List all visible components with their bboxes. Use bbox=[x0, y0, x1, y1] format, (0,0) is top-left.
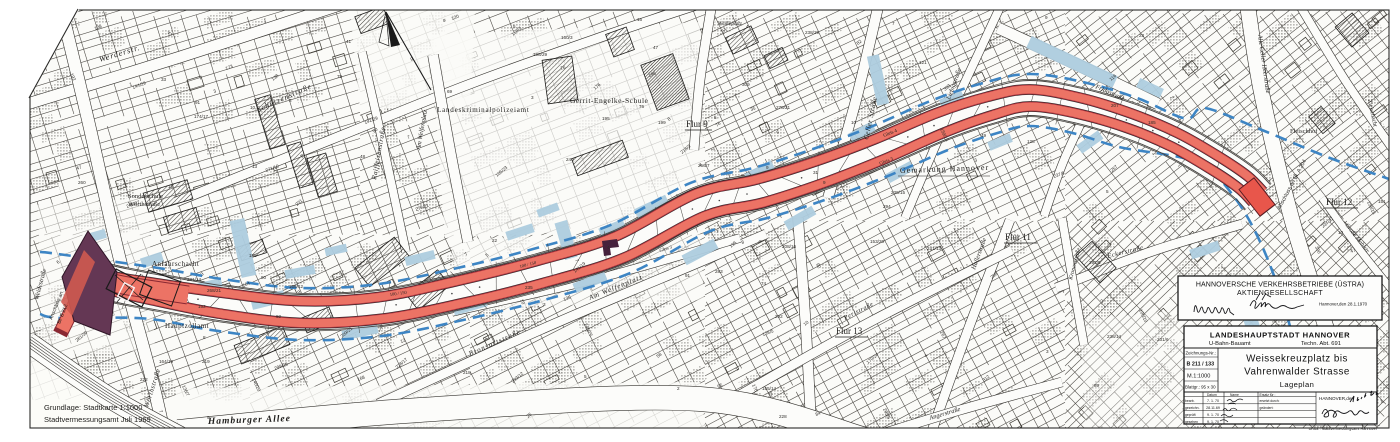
svg-text:Name: Name bbox=[1230, 393, 1239, 397]
svg-text:geprüft: geprüft bbox=[1185, 413, 1196, 417]
svg-text:Druck : Stadtvermessungsamt Ha: Druck : Stadtvermessungsamt Hannover bbox=[1309, 427, 1378, 431]
svg-text:241/13: 241/13 bbox=[927, 246, 941, 251]
svg-text:268/21: 268/21 bbox=[207, 288, 221, 293]
svg-text:7: 7 bbox=[892, 21, 895, 26]
svg-text:HANNOVERSCHE VERKEHRSBETRIEBE: HANNOVERSCHE VERKEHRSBETRIEBE (ÜSTRA) bbox=[1196, 281, 1364, 289]
svg-text:278/21: 278/21 bbox=[776, 105, 790, 110]
svg-text:28.11.69: 28.11.69 bbox=[1206, 406, 1220, 410]
svg-text:128: 128 bbox=[1027, 139, 1035, 144]
svg-text:92: 92 bbox=[276, 314, 282, 319]
svg-text:5: 5 bbox=[714, 115, 717, 120]
svg-text:240: 240 bbox=[566, 157, 574, 162]
svg-text:260: 260 bbox=[78, 180, 86, 185]
svg-text:207: 207 bbox=[1111, 103, 1119, 108]
svg-text:8: 8 bbox=[203, 335, 206, 340]
svg-text:9: 9 bbox=[443, 18, 446, 23]
svg-text:5: 5 bbox=[584, 374, 587, 379]
svg-text:Sonderschule: Sonderschule bbox=[128, 193, 163, 200]
svg-text:Anfahrschacht: Anfahrschacht bbox=[152, 260, 199, 268]
svg-text:bearb.: bearb. bbox=[1185, 399, 1195, 403]
svg-text:M.1:1000: M.1:1000 bbox=[1187, 374, 1210, 380]
svg-text:76: 76 bbox=[639, 104, 645, 109]
svg-text:10: 10 bbox=[1338, 230, 1344, 235]
svg-text:3: 3 bbox=[531, 95, 534, 100]
svg-text:256/7: 256/7 bbox=[698, 163, 710, 168]
svg-text:3: 3 bbox=[1046, 349, 1049, 354]
svg-text:15: 15 bbox=[168, 184, 174, 189]
svg-text:5: 5 bbox=[513, 24, 516, 29]
svg-text:HANNOVER,den: HANNOVER,den bbox=[1319, 396, 1354, 401]
svg-text:208/16: 208/16 bbox=[782, 244, 796, 249]
svg-text:74: 74 bbox=[761, 281, 767, 286]
svg-text:Gerrit-Engelke-Schule: Gerrit-Engelke-Schule bbox=[570, 96, 649, 105]
svg-text:297/5: 297/5 bbox=[1089, 260, 1101, 265]
svg-text:186: 186 bbox=[249, 253, 257, 258]
svg-text:ersetzt durch:: ersetzt durch: bbox=[1260, 399, 1280, 403]
svg-text:3: 3 bbox=[543, 302, 546, 307]
svg-text:Zeichnungs-Nr.:: Zeichnungs-Nr.: bbox=[1186, 351, 1216, 356]
svg-text:292: 292 bbox=[775, 314, 783, 319]
svg-text:Techn. Abt. 691: Techn. Abt. 691 bbox=[1301, 341, 1341, 347]
svg-text:309: 309 bbox=[742, 82, 750, 87]
svg-text:281/14: 281/14 bbox=[187, 277, 201, 282]
svg-text:199: 199 bbox=[658, 120, 666, 125]
svg-text:69: 69 bbox=[447, 89, 453, 94]
svg-text:Vahrenwalder Strasse: Vahrenwalder Strasse bbox=[1244, 367, 1350, 378]
svg-text:9: 9 bbox=[766, 165, 769, 170]
svg-text:91: 91 bbox=[685, 273, 691, 278]
svg-text:LANDESHAUPTSTADT HANNOVER: LANDESHAUPTSTADT HANNOVER bbox=[1210, 331, 1350, 340]
svg-text:AKTIENGESELLSCHAFT: AKTIENGESELLSCHAFT bbox=[1237, 290, 1323, 297]
svg-text:198/29: 198/29 bbox=[533, 52, 547, 57]
svg-text:49: 49 bbox=[981, 133, 987, 138]
svg-text:Flur 12: Flur 12 bbox=[1326, 197, 1352, 207]
svg-text:239/15: 239/15 bbox=[891, 190, 905, 195]
svg-text:23: 23 bbox=[1139, 33, 1145, 38]
svg-text:gezeichn.: gezeichn. bbox=[1185, 406, 1200, 410]
svg-text:Grundlage: Stadtkarte 1:1000: Grundlage: Stadtkarte 1:1000 bbox=[44, 403, 142, 412]
svg-text:9: 9 bbox=[823, 180, 826, 185]
svg-text:Weissekreuzplatz bis: Weissekreuzplatz bis bbox=[1246, 354, 1348, 365]
svg-text:195: 195 bbox=[602, 116, 610, 121]
svg-text:31: 31 bbox=[813, 170, 819, 175]
svg-text:235: 235 bbox=[525, 285, 533, 290]
svg-text:152: 152 bbox=[198, 304, 206, 309]
svg-text:5: 5 bbox=[1106, 189, 1109, 194]
svg-text:79: 79 bbox=[337, 74, 343, 79]
svg-text:7: 7 bbox=[716, 229, 719, 234]
svg-text:Lageplan: Lageplan bbox=[1280, 380, 1314, 389]
svg-text:9: 9 bbox=[207, 415, 210, 420]
svg-text:160/3: 160/3 bbox=[561, 35, 573, 40]
svg-text:294: 294 bbox=[883, 204, 891, 209]
svg-text:121: 121 bbox=[919, 60, 927, 65]
svg-text:33: 33 bbox=[161, 77, 167, 82]
svg-text:Stadtvermessungsamt Juli 1969: Stadtvermessungsamt Juli 1969 bbox=[44, 415, 151, 424]
svg-text:151: 151 bbox=[1378, 199, 1386, 204]
svg-text:gesehen: gesehen bbox=[1185, 420, 1198, 424]
svg-text:222: 222 bbox=[140, 377, 148, 382]
svg-text:231/6: 231/6 bbox=[1157, 337, 1169, 342]
svg-text:48: 48 bbox=[360, 154, 366, 159]
svg-text:B 211 / 133: B 211 / 133 bbox=[1187, 362, 1215, 368]
svg-text:Flur 13: Flur 13 bbox=[836, 326, 863, 336]
svg-text:geändert:: geändert: bbox=[1260, 406, 1274, 410]
svg-text:153/20: 153/20 bbox=[870, 239, 884, 244]
svg-text:9. 1. 70: 9. 1. 70 bbox=[1207, 413, 1219, 417]
svg-text:219: 219 bbox=[202, 359, 210, 364]
svg-text:89: 89 bbox=[1094, 383, 1100, 388]
svg-text:218: 218 bbox=[463, 370, 471, 375]
svg-text:U-Bahn-Bauamt: U-Bahn-Bauamt bbox=[1209, 341, 1251, 347]
svg-text:174/17: 174/17 bbox=[194, 114, 208, 119]
svg-text:Blattgr.: 95 x 30: Blattgr.: 95 x 30 bbox=[1185, 385, 1216, 390]
svg-text:91: 91 bbox=[195, 100, 201, 105]
svg-text:Flur 9: Flur 9 bbox=[686, 119, 708, 129]
svg-text:13: 13 bbox=[252, 164, 258, 169]
svg-text:Hannover,den 28.1.1970: Hannover,den 28.1.1970 bbox=[1319, 302, 1368, 307]
svg-text:238/29: 238/29 bbox=[805, 30, 819, 35]
svg-text:Weißeplatz: Weißeplatz bbox=[718, 20, 743, 27]
svg-text:16: 16 bbox=[637, 17, 643, 22]
svg-text:2: 2 bbox=[677, 386, 680, 391]
svg-text:Ersatz für :: Ersatz für : bbox=[1260, 393, 1276, 397]
svg-text:47: 47 bbox=[653, 45, 659, 50]
svg-text:4: 4 bbox=[607, 245, 610, 250]
svg-text:228: 228 bbox=[779, 414, 787, 419]
svg-text:22: 22 bbox=[492, 238, 498, 243]
svg-text:Hauptzollamt: Hauptzollamt bbox=[165, 322, 209, 330]
svg-text:Landeskriminalpolizeiamt: Landeskriminalpolizeiamt bbox=[437, 106, 530, 114]
svg-text:238/14: 238/14 bbox=[1107, 334, 1121, 339]
svg-text:10: 10 bbox=[250, 105, 256, 110]
svg-text:41: 41 bbox=[346, 39, 352, 44]
svg-text:185: 185 bbox=[1148, 120, 1156, 125]
svg-text:90: 90 bbox=[261, 275, 267, 280]
svg-text:Fleischhof: Fleischhof bbox=[1290, 128, 1318, 135]
svg-text:10: 10 bbox=[851, 120, 857, 125]
svg-text:3: 3 bbox=[289, 98, 292, 103]
svg-text:7. 1. 70: 7. 1. 70 bbox=[1207, 399, 1219, 403]
svg-text:9. 1. 70: 9. 1. 70 bbox=[1207, 420, 1219, 424]
svg-text:155/14: 155/14 bbox=[762, 386, 776, 391]
svg-text:164/19: 164/19 bbox=[159, 359, 173, 364]
svg-text:283: 283 bbox=[715, 269, 723, 274]
svg-text:9: 9 bbox=[1045, 15, 1048, 20]
svg-text:Datum: Datum bbox=[1207, 393, 1217, 397]
svg-text:106/12: 106/12 bbox=[289, 284, 303, 289]
svg-text:4: 4 bbox=[746, 24, 749, 29]
svg-text:Flur 11: Flur 11 bbox=[1005, 232, 1031, 242]
